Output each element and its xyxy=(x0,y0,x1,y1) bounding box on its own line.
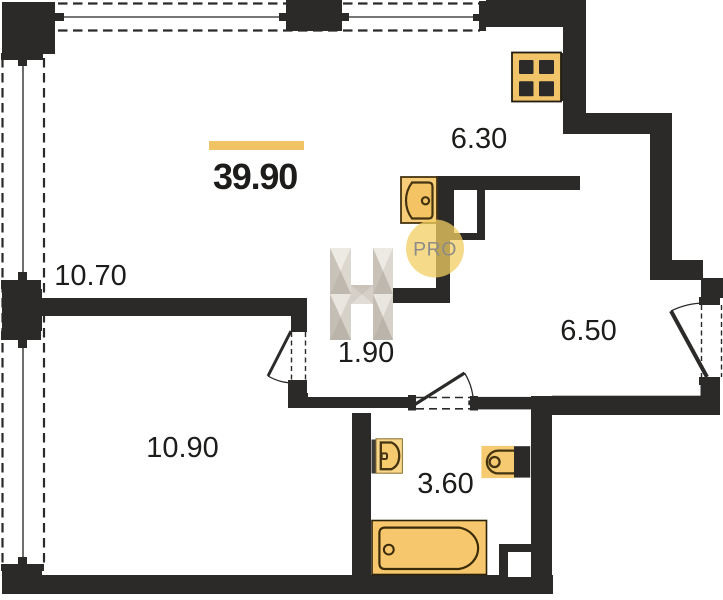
svg-text:6.30: 6.30 xyxy=(451,123,507,155)
svg-text:6.50: 6.50 xyxy=(560,315,616,347)
svg-text:39.90: 39.90 xyxy=(213,156,297,197)
svg-text:3.60: 3.60 xyxy=(417,468,473,500)
svg-text:PRO: PRO xyxy=(413,239,457,261)
svg-text:1.90: 1.90 xyxy=(338,337,394,369)
svg-text:10.70: 10.70 xyxy=(54,260,127,292)
svg-text:10.90: 10.90 xyxy=(146,432,219,464)
